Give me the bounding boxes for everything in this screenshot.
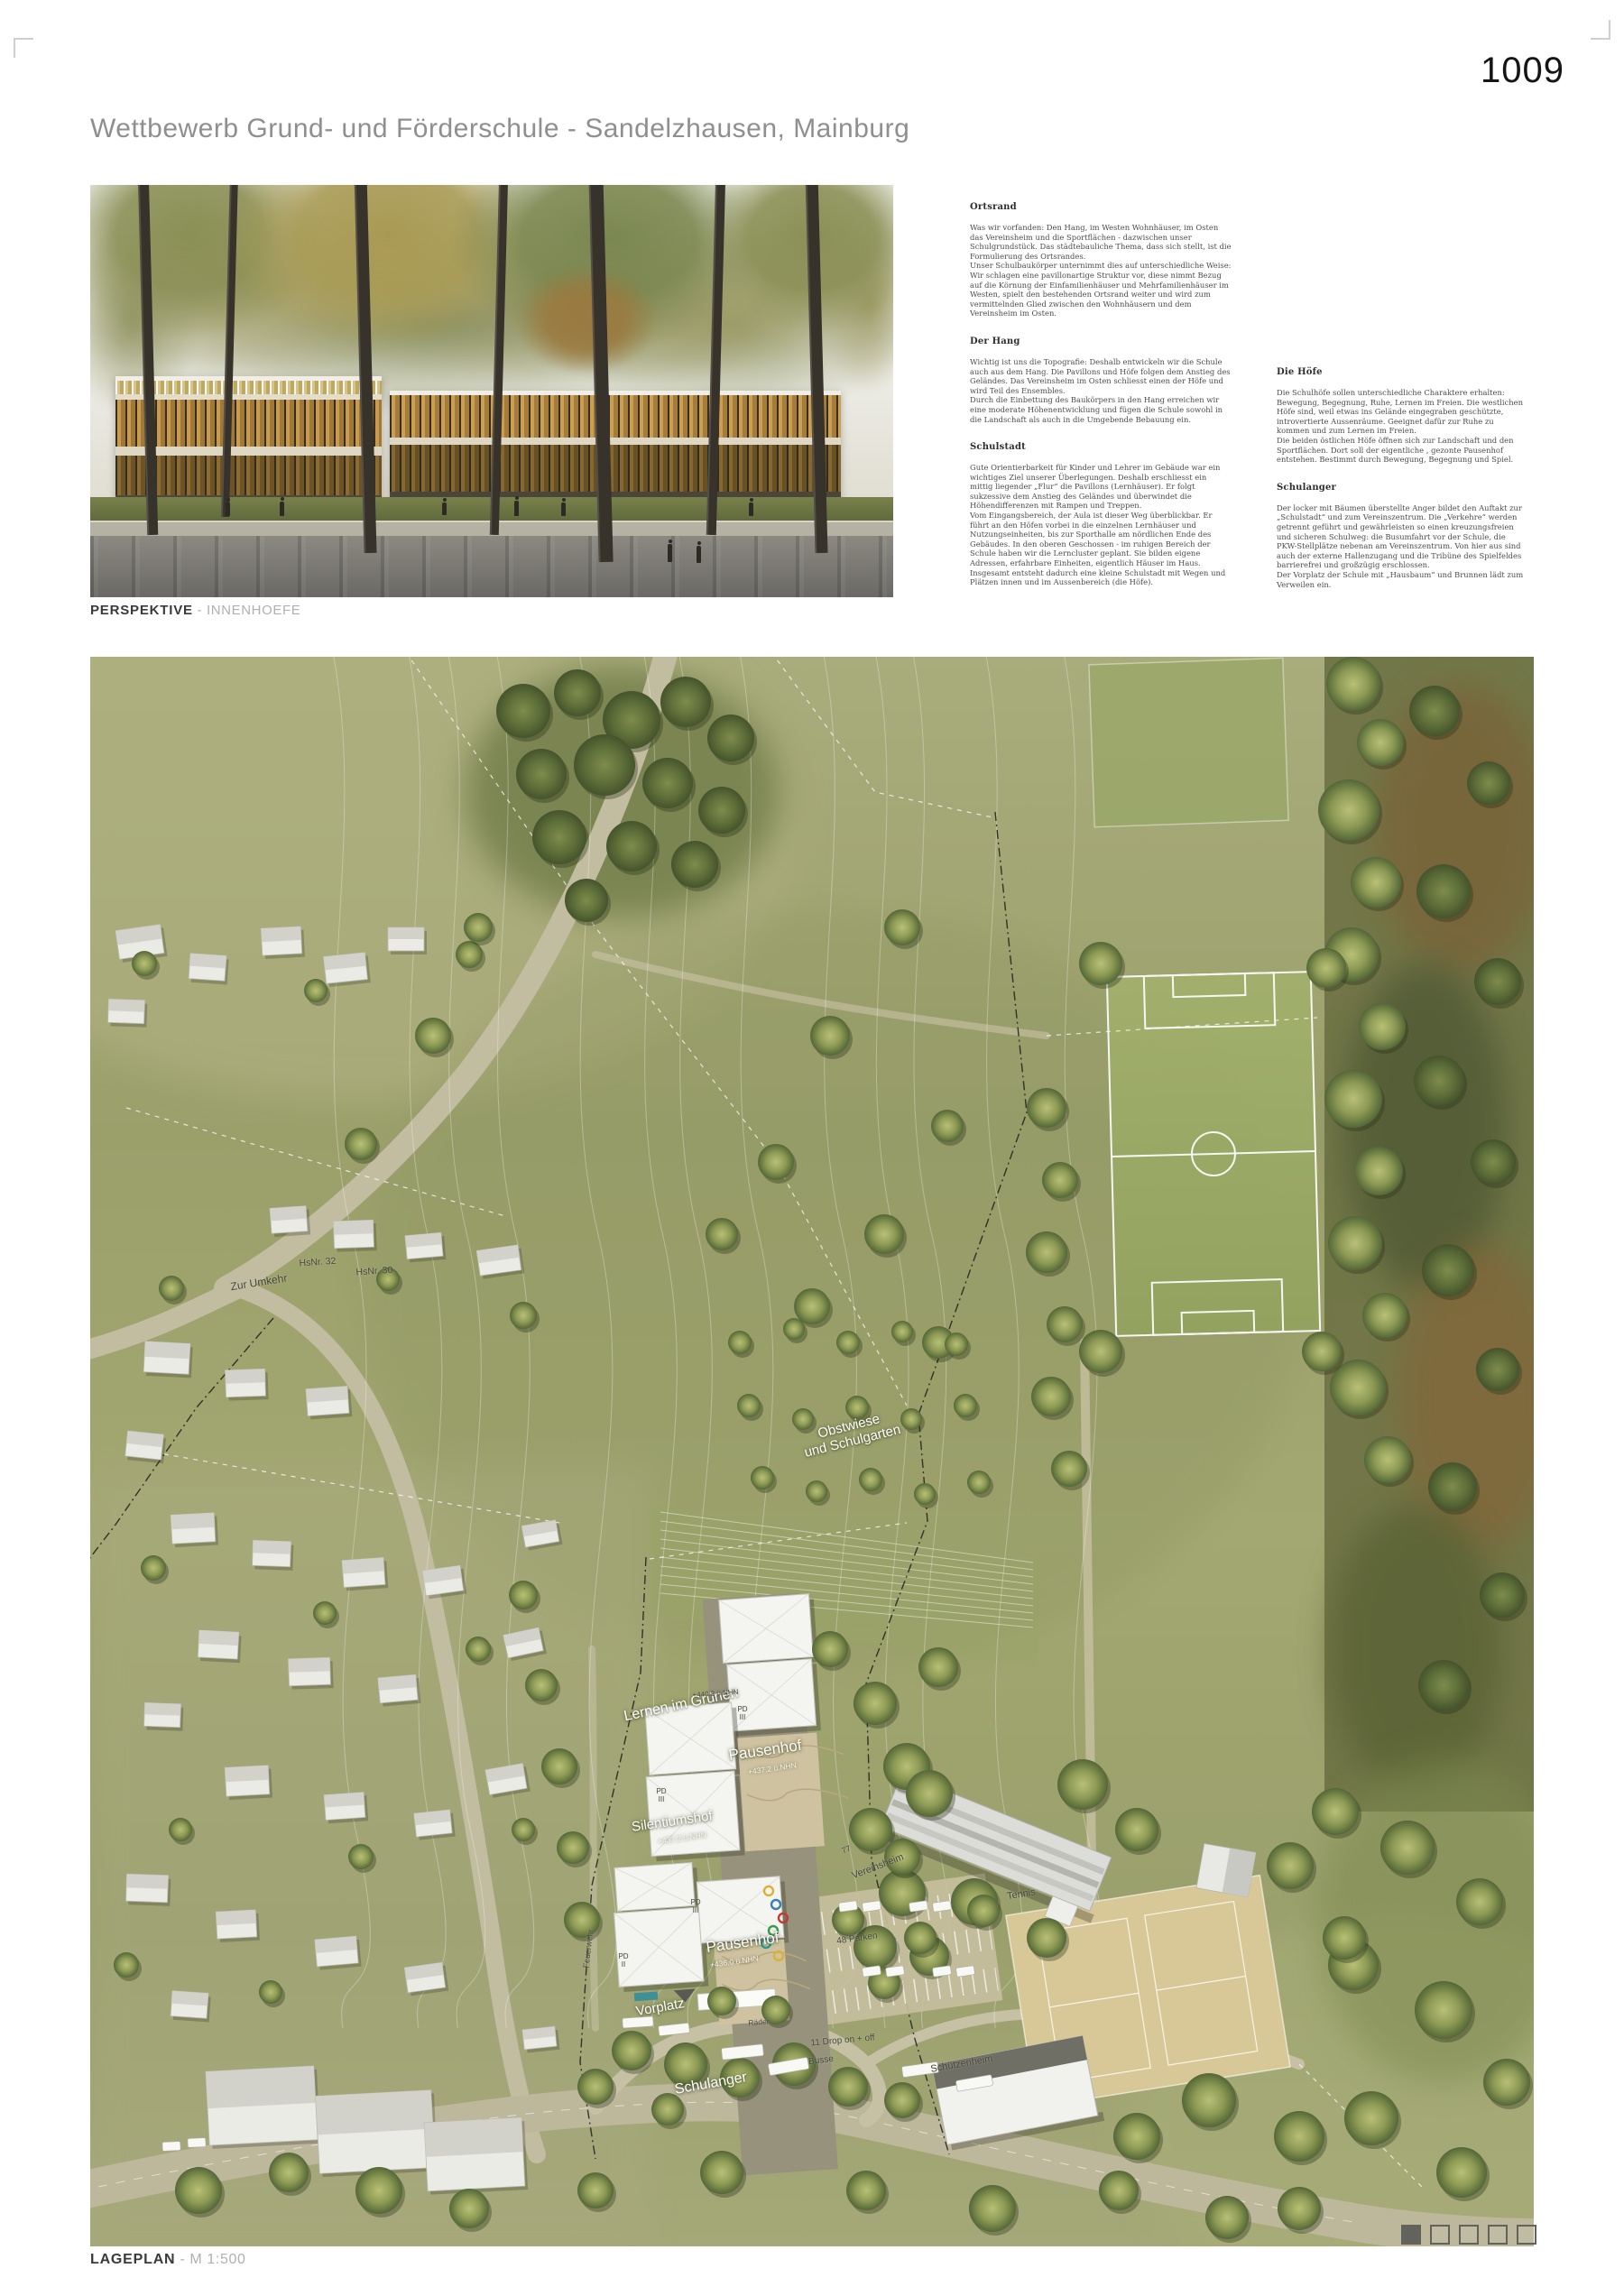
section-ortsrand: Ortsrand Was wir vorfanden: Den Hang, im… <box>970 202 1232 318</box>
sheet-indicator-square <box>1401 2225 1421 2245</box>
crop-mark <box>14 38 15 58</box>
competition-board: 1009 Wettbewerb Grund- und Förderschule … <box>0 0 1624 2296</box>
section-der-hang: Der Hang Wichtig ist uns die Topografie:… <box>970 337 1232 424</box>
person-silhouette <box>668 544 672 562</box>
text-column-2: Die Höfe Die Schulhöfe sollen unterschie… <box>1277 367 1527 607</box>
person-silhouette <box>561 503 566 516</box>
section-schulstadt: Schulstadt Gute Orientierbarkeit für Kin… <box>970 442 1232 587</box>
person-silhouette <box>749 503 753 516</box>
crop-mark <box>1609 20 1610 40</box>
person-silhouette <box>442 503 447 515</box>
sheet-indicator-square <box>1459 2225 1479 2245</box>
lageplan-caption: LAGEPLAN - M 1:500 <box>90 2252 245 2268</box>
section-die-hoefe: Die Höfe Die Schulhöfe sollen unterschie… <box>1277 367 1527 465</box>
site-plan: Obstwiese und SchulgartenLernen im Grüne… <box>90 657 1534 2246</box>
page-title: Wettbewerb Grund- und Förderschule - San… <box>90 114 909 144</box>
crop-mark <box>1591 38 1610 40</box>
person-silhouette <box>514 501 519 516</box>
sheet-indicator-square <box>1517 2225 1536 2245</box>
perspective-rendering <box>90 185 893 597</box>
person-silhouette <box>697 546 701 563</box>
section-schulanger: Schulanger Der locker mit Bäumen überste… <box>1277 483 1527 589</box>
crop-mark <box>14 38 33 40</box>
sheet-indicator-square <box>1430 2225 1450 2245</box>
entry-number: 1009 <box>1481 51 1564 91</box>
site-plan-rendering <box>90 657 1534 2246</box>
street <box>90 536 893 597</box>
sheet-indicator <box>1401 2225 1536 2245</box>
tree-canopy <box>514 266 659 374</box>
text-column-1: Ortsrand Was wir vorfanden: Den Hang, im… <box>970 202 1232 605</box>
sheet-indicator-square <box>1488 2225 1508 2245</box>
person-silhouette <box>226 503 230 516</box>
person-silhouette <box>280 502 284 516</box>
school-building-right-wing <box>390 391 841 503</box>
perspective-caption: PERSPEKTIVE - INNENHOEFE <box>90 603 300 618</box>
